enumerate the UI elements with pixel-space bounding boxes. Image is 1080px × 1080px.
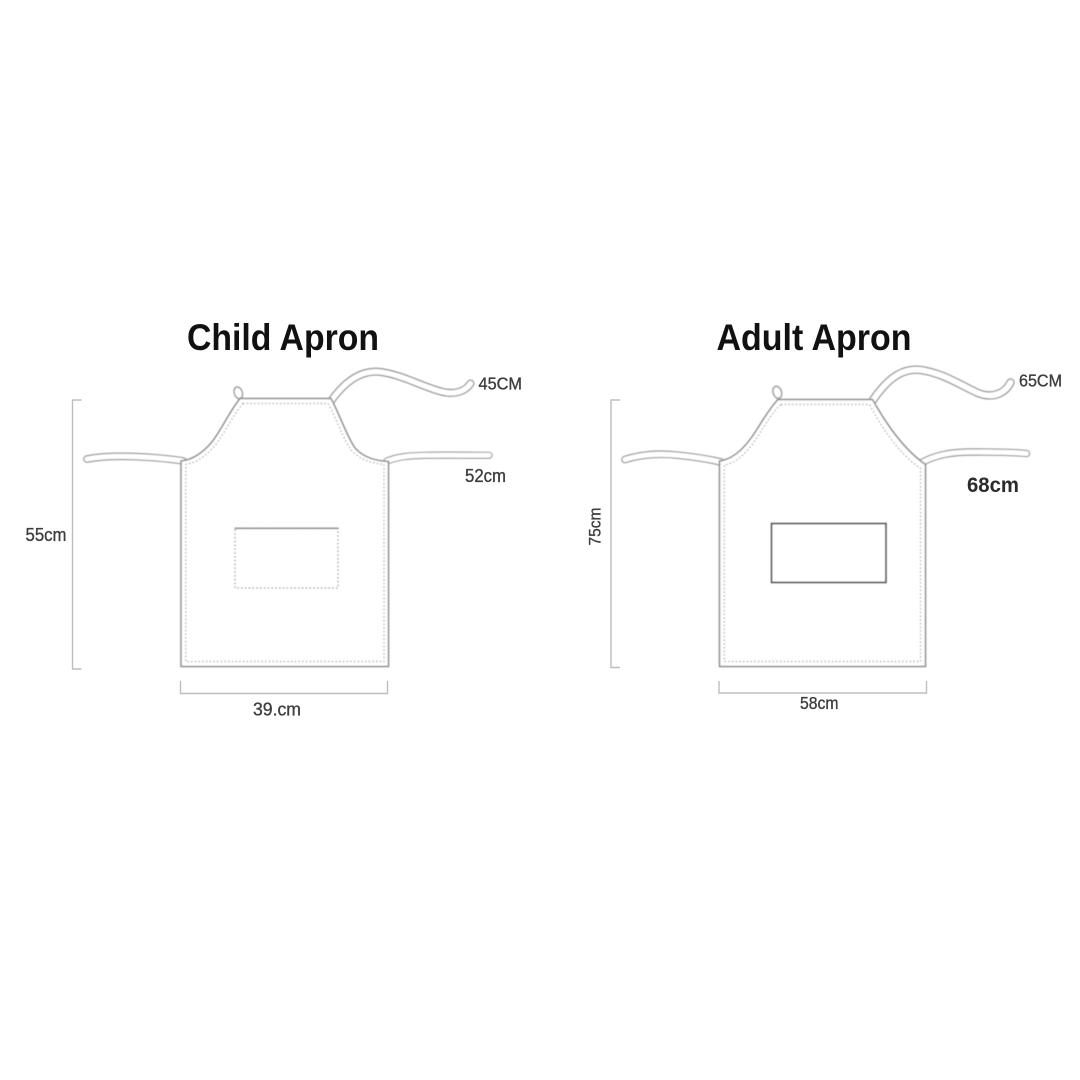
svg-text:52cm: 52cm [465,466,506,486]
svg-text:Child Apron: Child Apron [187,317,379,358]
svg-text:39.cm: 39.cm [253,699,301,720]
svg-text:75cm: 75cm [586,508,605,546]
svg-text:Adult Apron: Adult Apron [717,317,912,358]
svg-text:55cm: 55cm [26,525,67,545]
svg-text:65CM: 65CM [1019,371,1062,391]
svg-text:45CM: 45CM [479,374,523,394]
svg-text:58cm: 58cm [800,693,839,713]
svg-text:68cm: 68cm [967,473,1019,497]
